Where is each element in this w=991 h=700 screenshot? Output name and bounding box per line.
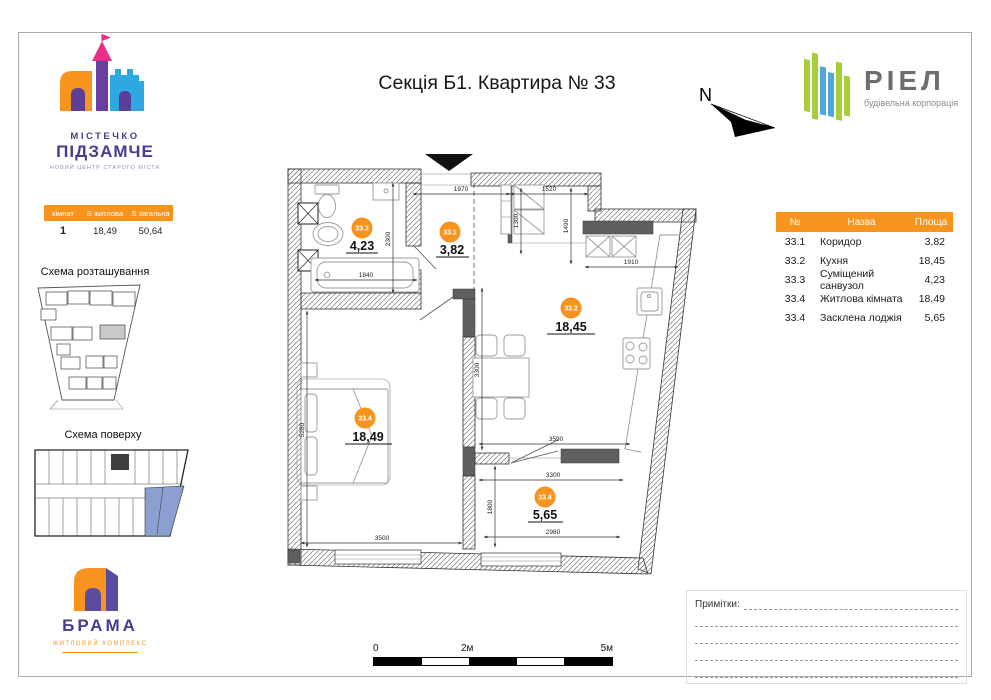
notes-block: Примітки: <box>686 590 967 684</box>
scale-bar-segments <box>373 657 613 666</box>
dim-label: 3590 <box>549 436 564 443</box>
location-scheme-title: Схема розташування <box>20 266 170 278</box>
summary-header-total: S загальна <box>128 209 173 218</box>
scale-bar: 0 2м 5м <box>373 643 613 669</box>
estate-name-line2: ПІДЗАМЧЕ <box>35 142 175 162</box>
estate-tagline: НОВИЙ ЦЕНТР СТАРОГО МІСТА <box>35 165 175 171</box>
dim-label: 3300 <box>546 472 561 479</box>
room-area-label: 18,49 <box>352 430 383 444</box>
notes-line <box>744 609 958 610</box>
room-area: 18,49 <box>909 293 953 305</box>
floor-plan: 1970 1520 1300 1490 1910 2300 1840 5280 … <box>273 146 713 594</box>
developer-logo-icon <box>800 40 856 135</box>
room-num: 33.4 <box>776 293 814 305</box>
apartment-summary-table: кімнат S житлова S загальна 1 18,49 50,6… <box>44 205 173 241</box>
table-row: 33.3 Суміщений санвузол 4,23 <box>776 270 953 289</box>
highlighted-apartment <box>145 486 184 536</box>
summary-total-value: 50,64 <box>128 226 173 237</box>
north-arrow-icon: N <box>693 76 783 138</box>
room-num: 33.2 <box>776 255 814 267</box>
page-title: Секція Б1. Квартира № 33 <box>297 72 697 95</box>
dim-label: 2980 <box>546 529 561 536</box>
dim-label: 1840 <box>359 272 374 279</box>
summary-living-value: 18,49 <box>82 226 128 237</box>
rooms-header-num: № <box>776 217 814 228</box>
dim-label: 1520 <box>542 186 557 193</box>
room-badge-num: 33.4 <box>538 495 552 502</box>
dim-label: 3300 <box>474 362 481 377</box>
rooms-header-area: Площа <box>909 217 953 228</box>
dim-label: 1970 <box>454 186 469 193</box>
entrance-arrow <box>425 154 473 171</box>
rooms-header-name: Назва <box>814 217 909 228</box>
notes-line <box>695 627 958 644</box>
plan-sheet: МІСТЕЧКО ПІДЗАМЧЕ НОВИЙ ЦЕНТР СТАРОГО МІ… <box>0 0 991 700</box>
room-badge-num: 33.1 <box>443 230 457 237</box>
dim-label: 1800 <box>487 499 494 514</box>
notes-label: Примітки: <box>695 599 740 610</box>
dim-label: 1910 <box>624 259 639 266</box>
notes-line <box>695 644 958 661</box>
floor-scheme-title: Схема поверху <box>28 429 178 441</box>
complex-tagline: ЖИТЛОВИЙ КОМПЛЕКС <box>40 641 160 647</box>
corridor-wardrobe <box>501 185 544 234</box>
complex-name: БРАМА <box>40 616 160 636</box>
scale-label-2m: 2м <box>461 643 473 654</box>
summary-header-rooms: кімнат <box>44 209 82 218</box>
estate-castle-logo-icon <box>52 33 157 131</box>
room-area: 5,65 <box>909 312 953 324</box>
dining-set <box>473 335 529 419</box>
room-num: 33.3 <box>776 274 814 286</box>
dim-label: 5280 <box>299 422 306 437</box>
room-name: Кухня <box>814 255 909 267</box>
dim-label: 1490 <box>563 218 570 233</box>
room-area: 4,23 <box>909 274 953 286</box>
summary-header-living: S житлова <box>82 209 128 218</box>
brama-gate-logo-icon <box>70 563 126 615</box>
estate-name-line1: МІСТЕЧКО <box>40 131 170 142</box>
summary-table-row: 1 18,49 50,64 <box>44 221 173 241</box>
summary-table-header: кімнат S житлова S загальна <box>44 205 173 221</box>
room-name: Засклена лоджія <box>814 312 909 324</box>
dim-label: 1300 <box>513 213 520 228</box>
room-badge-num: 33.2 <box>564 306 578 313</box>
notes-line <box>695 661 958 678</box>
rooms-table-header: № Назва Площа <box>776 212 953 232</box>
scale-label-0: 0 <box>373 643 379 654</box>
table-row: 33.4 Житлова кімната 18,49 <box>776 289 953 308</box>
room-num: 33.4 <box>776 312 814 324</box>
room-area-label: 18,45 <box>555 320 586 334</box>
table-row: 33.4 Засклена лоджія 5,65 <box>776 308 953 327</box>
rooms-table: № Назва Площа 33.1 Коридор 3,82 33.2 Кух… <box>776 212 953 327</box>
notes-line <box>695 610 958 627</box>
room-area: 3,82 <box>909 236 953 248</box>
north-label: N <box>699 85 712 105</box>
table-row: 33.1 Коридор 3,82 <box>776 232 953 251</box>
room-area-label: 3,82 <box>440 243 464 257</box>
floor-scheme-map <box>33 446 195 542</box>
room-name: Житлова кімната <box>814 293 909 305</box>
room-name: Коридор <box>814 236 909 248</box>
room-name: Суміщений санвузол <box>814 268 909 292</box>
room-badge-num: 33.4 <box>358 416 372 423</box>
developer-logo: РІЕЛ будівельна корпорація <box>800 40 970 135</box>
room-area: 18,45 <box>909 255 953 267</box>
room-area-label: 4,23 <box>350 239 374 253</box>
location-scheme-map <box>28 284 148 412</box>
developer-name: РІЕЛ <box>864 67 958 95</box>
complex-tagline-underline <box>62 652 138 653</box>
room-area-label: 5,65 <box>533 508 557 522</box>
summary-rooms-value: 1 <box>44 225 82 237</box>
dim-label: 3500 <box>375 535 390 542</box>
room-badge-num: 33.3 <box>355 226 369 233</box>
scale-label-5m: 5м <box>601 643 613 654</box>
developer-tagline: будівельна корпорація <box>864 98 958 108</box>
room-num: 33.1 <box>776 236 814 248</box>
dim-label: 2300 <box>385 231 392 246</box>
